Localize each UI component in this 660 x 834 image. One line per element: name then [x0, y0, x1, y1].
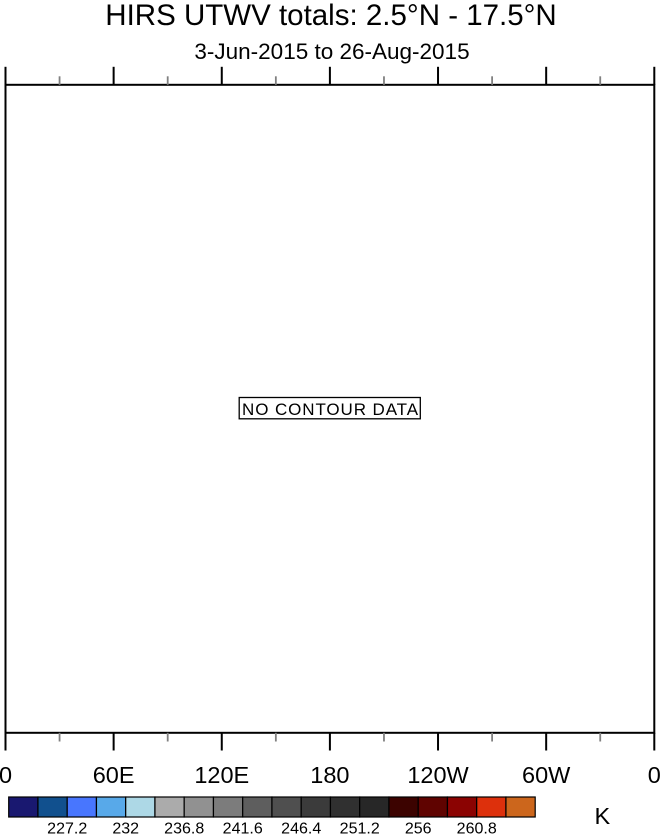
svg-text:260.8: 260.8 — [457, 821, 497, 834]
svg-text:K: K — [594, 803, 610, 829]
svg-text:60E: 60E — [93, 762, 135, 788]
svg-text:0: 0 — [0, 762, 12, 788]
svg-text:HIRS UTWV totals: 2.5°N - 17.5: HIRS UTWV totals: 2.5°N - 17.5°N — [105, 0, 556, 32]
svg-text:241.6: 241.6 — [223, 821, 263, 834]
svg-text:120W: 120W — [407, 762, 469, 788]
svg-text:227.2: 227.2 — [47, 821, 87, 834]
svg-text:180: 180 — [310, 762, 349, 788]
svg-text:256: 256 — [405, 821, 432, 834]
svg-text:120E: 120E — [194, 762, 249, 788]
svg-text:236.8: 236.8 — [164, 821, 204, 834]
svg-text:3-Jun-2015 to 26-Aug-2015: 3-Jun-2015 to 26-Aug-2015 — [194, 39, 469, 64]
svg-text:251.2: 251.2 — [340, 821, 380, 834]
svg-text:NO CONTOUR DATA: NO CONTOUR DATA — [242, 400, 419, 419]
svg-text:232: 232 — [112, 821, 139, 834]
svg-text:246.4: 246.4 — [281, 821, 321, 834]
svg-text:0: 0 — [648, 762, 660, 788]
svg-text:60W: 60W — [522, 762, 571, 788]
